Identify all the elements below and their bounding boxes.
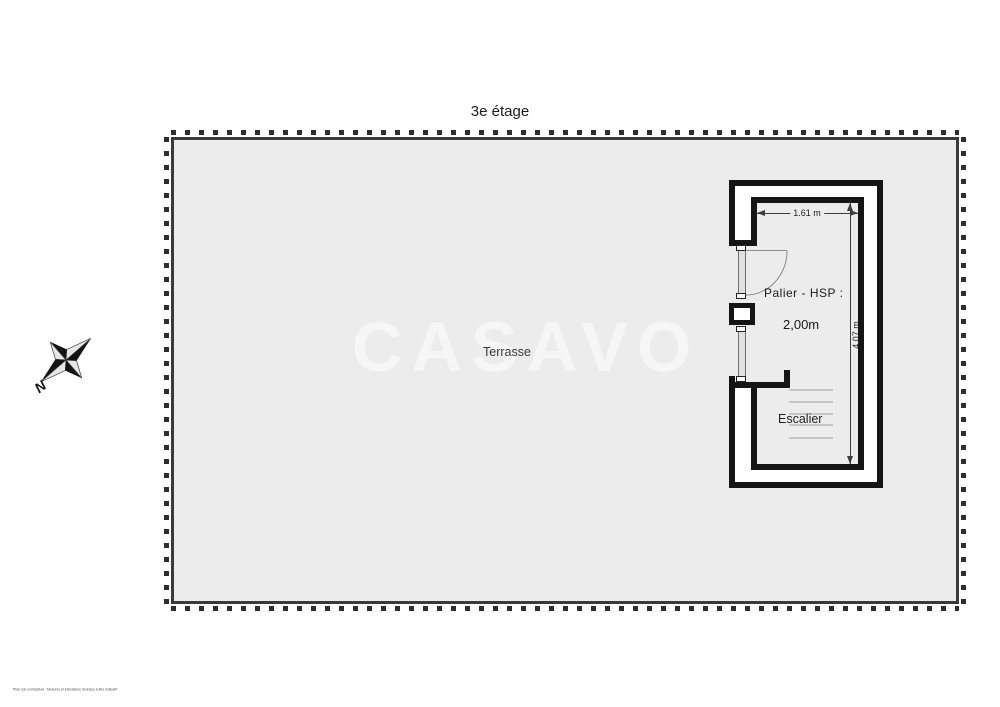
terrace-hatch-left	[164, 137, 169, 604]
terrace-hatch-right	[961, 137, 966, 604]
wall-outer-top	[729, 180, 883, 186]
disclaimer-text: Plan non contractuel - Mesures et indica…	[13, 688, 117, 692]
north-label: N	[31, 377, 50, 396]
compass-rose-icon: N	[30, 326, 102, 402]
dimension-width-label: 1.61 m	[790, 208, 824, 218]
wall-outer-right	[877, 180, 883, 488]
terrace-hatch-bottom	[171, 606, 959, 611]
stair-tread	[789, 401, 833, 403]
wall-outer-bottom	[729, 482, 883, 488]
wall-stair-bar	[729, 382, 790, 388]
wall-inner-left-lower	[751, 382, 757, 470]
window-panel	[738, 332, 746, 376]
dimension-arrow-left	[757, 210, 765, 216]
wall-inner-bottom	[751, 464, 864, 470]
stair-tread	[789, 389, 833, 391]
wall-stair-stub	[784, 370, 790, 382]
dimension-arrow-down	[847, 456, 853, 464]
terrace-label: Terrasse	[455, 345, 559, 359]
page-title: 3e étage	[420, 103, 580, 120]
window-cap	[736, 376, 746, 382]
wall-outer-left-upper	[729, 180, 735, 246]
dimension-height-label: 4,07 m	[851, 318, 861, 352]
terrace-hatch-top	[171, 130, 959, 135]
ceiling-height-value: 2,00m	[783, 317, 819, 332]
wall-outer-left-lower	[729, 376, 735, 488]
wall-pillar	[729, 303, 755, 325]
room-name-label: Palier - HSP :	[764, 286, 843, 300]
dimension-arrow-up	[847, 203, 853, 211]
stairs-label: Escalier	[778, 412, 822, 426]
stair-tread	[789, 437, 833, 439]
wall-inner-left-upper	[751, 197, 757, 246]
floor-plan-page: 3e étage CASAVO Terrasse Pal	[0, 0, 1000, 707]
